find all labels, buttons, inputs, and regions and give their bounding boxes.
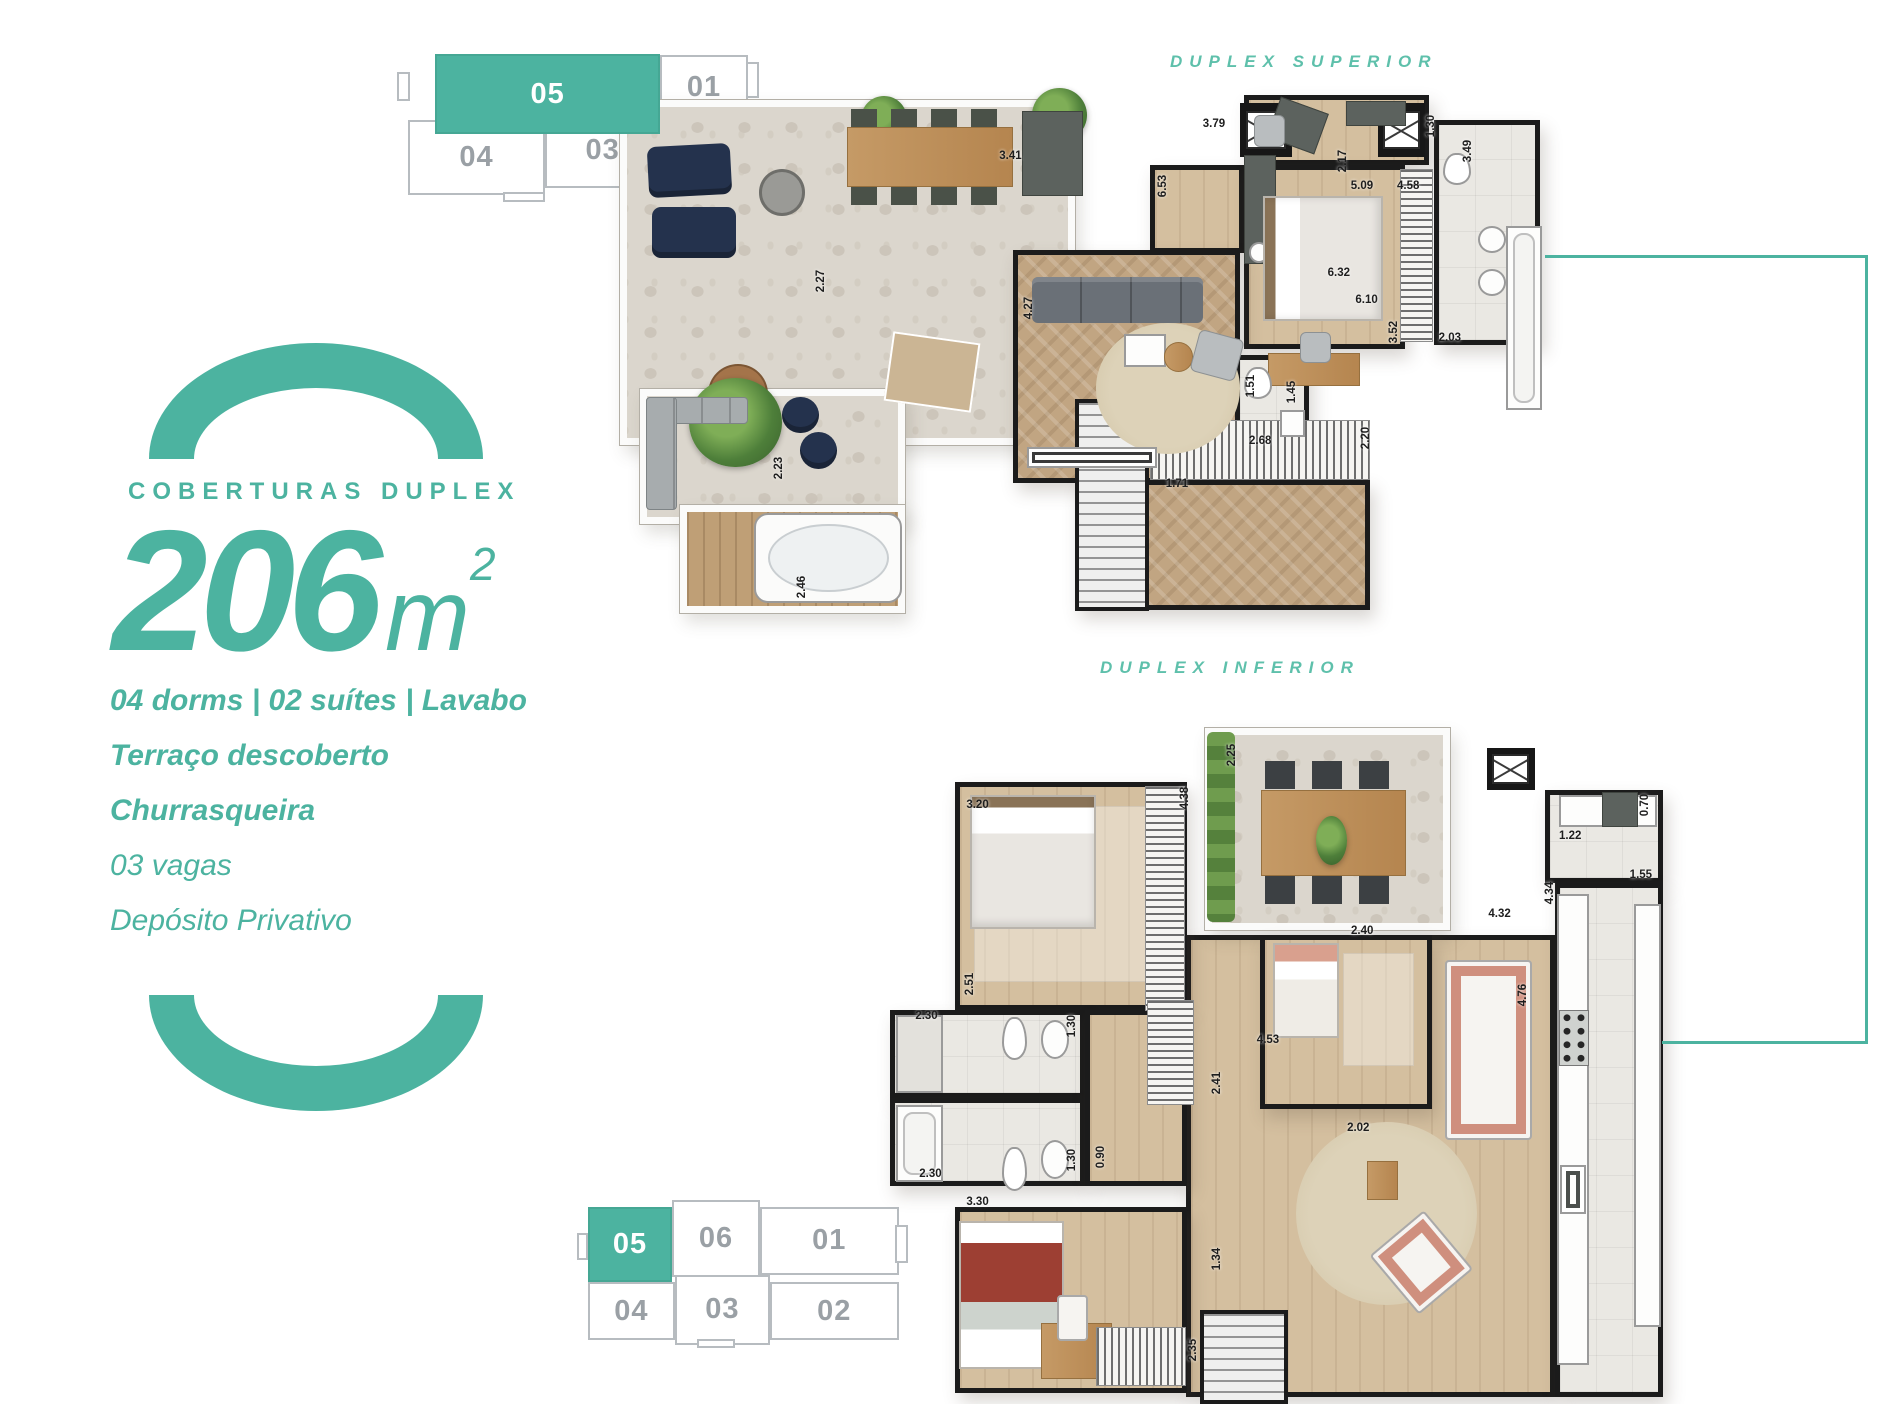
- dimension-label: 1.30: [1066, 1149, 1078, 1171]
- dimension-label: 2.23: [773, 456, 785, 478]
- floor-plan-duplex-inferior: 3.202.514.382.251.220.701.554.344.322.30…: [880, 700, 1665, 1404]
- dimension-label: 1.51: [1245, 375, 1257, 397]
- dimension-label: 4.32: [1488, 908, 1510, 920]
- feature-item: Churrasqueira: [110, 794, 630, 849]
- dimension-label: 1.55: [1630, 869, 1652, 881]
- dimension-label: 3.41: [999, 150, 1021, 162]
- keyplan-unit-cell[interactable]: 01: [760, 1207, 899, 1275]
- keyplan-unit-number: 05: [530, 78, 564, 111]
- dimension-label: 3.52: [1388, 321, 1400, 343]
- dimension-label: 2.68: [1249, 435, 1271, 447]
- dimension-label: 4.58: [1397, 180, 1419, 192]
- dimension-label: 1.22: [1559, 830, 1581, 842]
- dimension-labels-superior: 3.413.792.171.304.585.093.496.536.326.10…: [620, 85, 1545, 627]
- dimension-label: 1.71: [1166, 478, 1188, 490]
- dimension-label: 4.34: [1545, 881, 1557, 903]
- dimension-label: 5.09: [1351, 180, 1373, 192]
- keyplan-unit-cell[interactable]: [397, 72, 409, 101]
- keyplan-unit-number: 04: [614, 1295, 648, 1328]
- decorative-arc-top: [149, 343, 483, 459]
- dimension-label: 2.46: [796, 576, 808, 598]
- keyplan-unit-cell[interactable]: [697, 1339, 735, 1348]
- unit-area-unit: m: [385, 558, 470, 672]
- dimension-label: 1.30: [1066, 1015, 1078, 1037]
- dimension-label: 2.17: [1337, 150, 1349, 172]
- floorplan-brochure-page: { "accent": {"teal": "#4cb3a0", "teal_li…: [0, 0, 1900, 1404]
- dimension-label: 2.27: [815, 269, 827, 291]
- feature-item: Depósito Privativo: [110, 904, 630, 959]
- feature-item: 04 dorms | 02 suítes | Lavabo: [110, 684, 630, 739]
- dimension-label: 6.10: [1355, 294, 1377, 306]
- connector-line-bottom: [1662, 1041, 1868, 1044]
- connector-line-top: [1545, 255, 1868, 258]
- dimension-label: 2.51: [964, 973, 976, 995]
- keyplan-unit-cell[interactable]: 05: [435, 54, 660, 134]
- dimension-label: 3.20: [966, 799, 988, 811]
- plan-title-inferior: DUPLEX INFERIOR: [1100, 658, 1360, 678]
- keyplan-unit-number: 03: [705, 1293, 739, 1326]
- keyplan-unit-number: 03: [585, 134, 619, 167]
- unit-area: 206m2: [112, 505, 496, 677]
- keyplan-unit-number: 04: [459, 141, 493, 174]
- keyplan-unit-cell[interactable]: [503, 192, 545, 202]
- keyplan-unit-number: 01: [812, 1224, 846, 1257]
- keyplan-unit-cell[interactable]: 05: [588, 1207, 672, 1282]
- dimension-label: 2.30: [919, 1168, 941, 1180]
- dimension-label: 6.32: [1328, 267, 1350, 279]
- feature-item: Terraço descoberto: [110, 739, 630, 794]
- dimension-label: 1.34: [1211, 1247, 1223, 1269]
- dimension-label: 3.49: [1462, 139, 1474, 161]
- unit-area-superscript: 2: [470, 538, 496, 590]
- keyplan-inferior-floor: 050601040302: [585, 1195, 905, 1345]
- dimension-label: 4.27: [1023, 297, 1035, 319]
- dimension-label: 1.45: [1287, 381, 1299, 403]
- plan-title-superior: DUPLEX SUPERIOR: [1170, 52, 1437, 72]
- decorative-arc-bottom: [149, 995, 483, 1111]
- keyplan-unit-cell[interactable]: 03: [675, 1275, 770, 1345]
- dimension-label: 3.79: [1203, 118, 1225, 130]
- dimension-label: 2.30: [915, 1010, 937, 1022]
- dimension-label: 0.70: [1639, 793, 1651, 815]
- keyplan-unit-number: 05: [613, 1228, 647, 1261]
- keyplan-unit-cell[interactable]: [577, 1233, 588, 1260]
- floor-plan-duplex-superior: 3.413.792.171.304.585.093.496.536.326.10…: [620, 85, 1545, 627]
- dimension-label: 2.35: [1187, 1339, 1199, 1361]
- dimension-label: 4.53: [1257, 1034, 1279, 1046]
- dimension-label: 4.38: [1180, 786, 1192, 808]
- dimension-label: 2.25: [1227, 744, 1239, 766]
- dimension-label: 1.30: [1425, 115, 1437, 137]
- dimension-label: 3.30: [966, 1196, 988, 1208]
- dimension-label: 2.02: [1347, 1122, 1369, 1134]
- keyplan-unit-number: 02: [817, 1295, 851, 1328]
- dimension-label: 2.20: [1361, 427, 1373, 449]
- dimension-label: 2.41: [1211, 1071, 1223, 1093]
- keyplan-unit-cell[interactable]: 04: [588, 1282, 675, 1340]
- unit-area-number: 206: [112, 495, 375, 687]
- dimension-label: 6.53: [1157, 175, 1169, 197]
- keyplan-unit-number: 06: [699, 1222, 733, 1255]
- connector-line-vertical: [1865, 255, 1868, 1044]
- dimension-label: 2.03: [1439, 332, 1461, 344]
- dimension-label: 2.40: [1351, 925, 1373, 937]
- dimension-label: 0.90: [1096, 1145, 1108, 1167]
- feature-list: 04 dorms | 02 suítes | LavaboTerraço des…: [110, 684, 630, 959]
- feature-item: 03 vagas: [110, 849, 630, 904]
- dimension-labels-inferior: 3.202.514.382.251.220.701.554.344.322.30…: [880, 700, 1665, 1404]
- dimension-label: 4.76: [1517, 983, 1529, 1005]
- keyplan-unit-cell[interactable]: 06: [672, 1200, 760, 1277]
